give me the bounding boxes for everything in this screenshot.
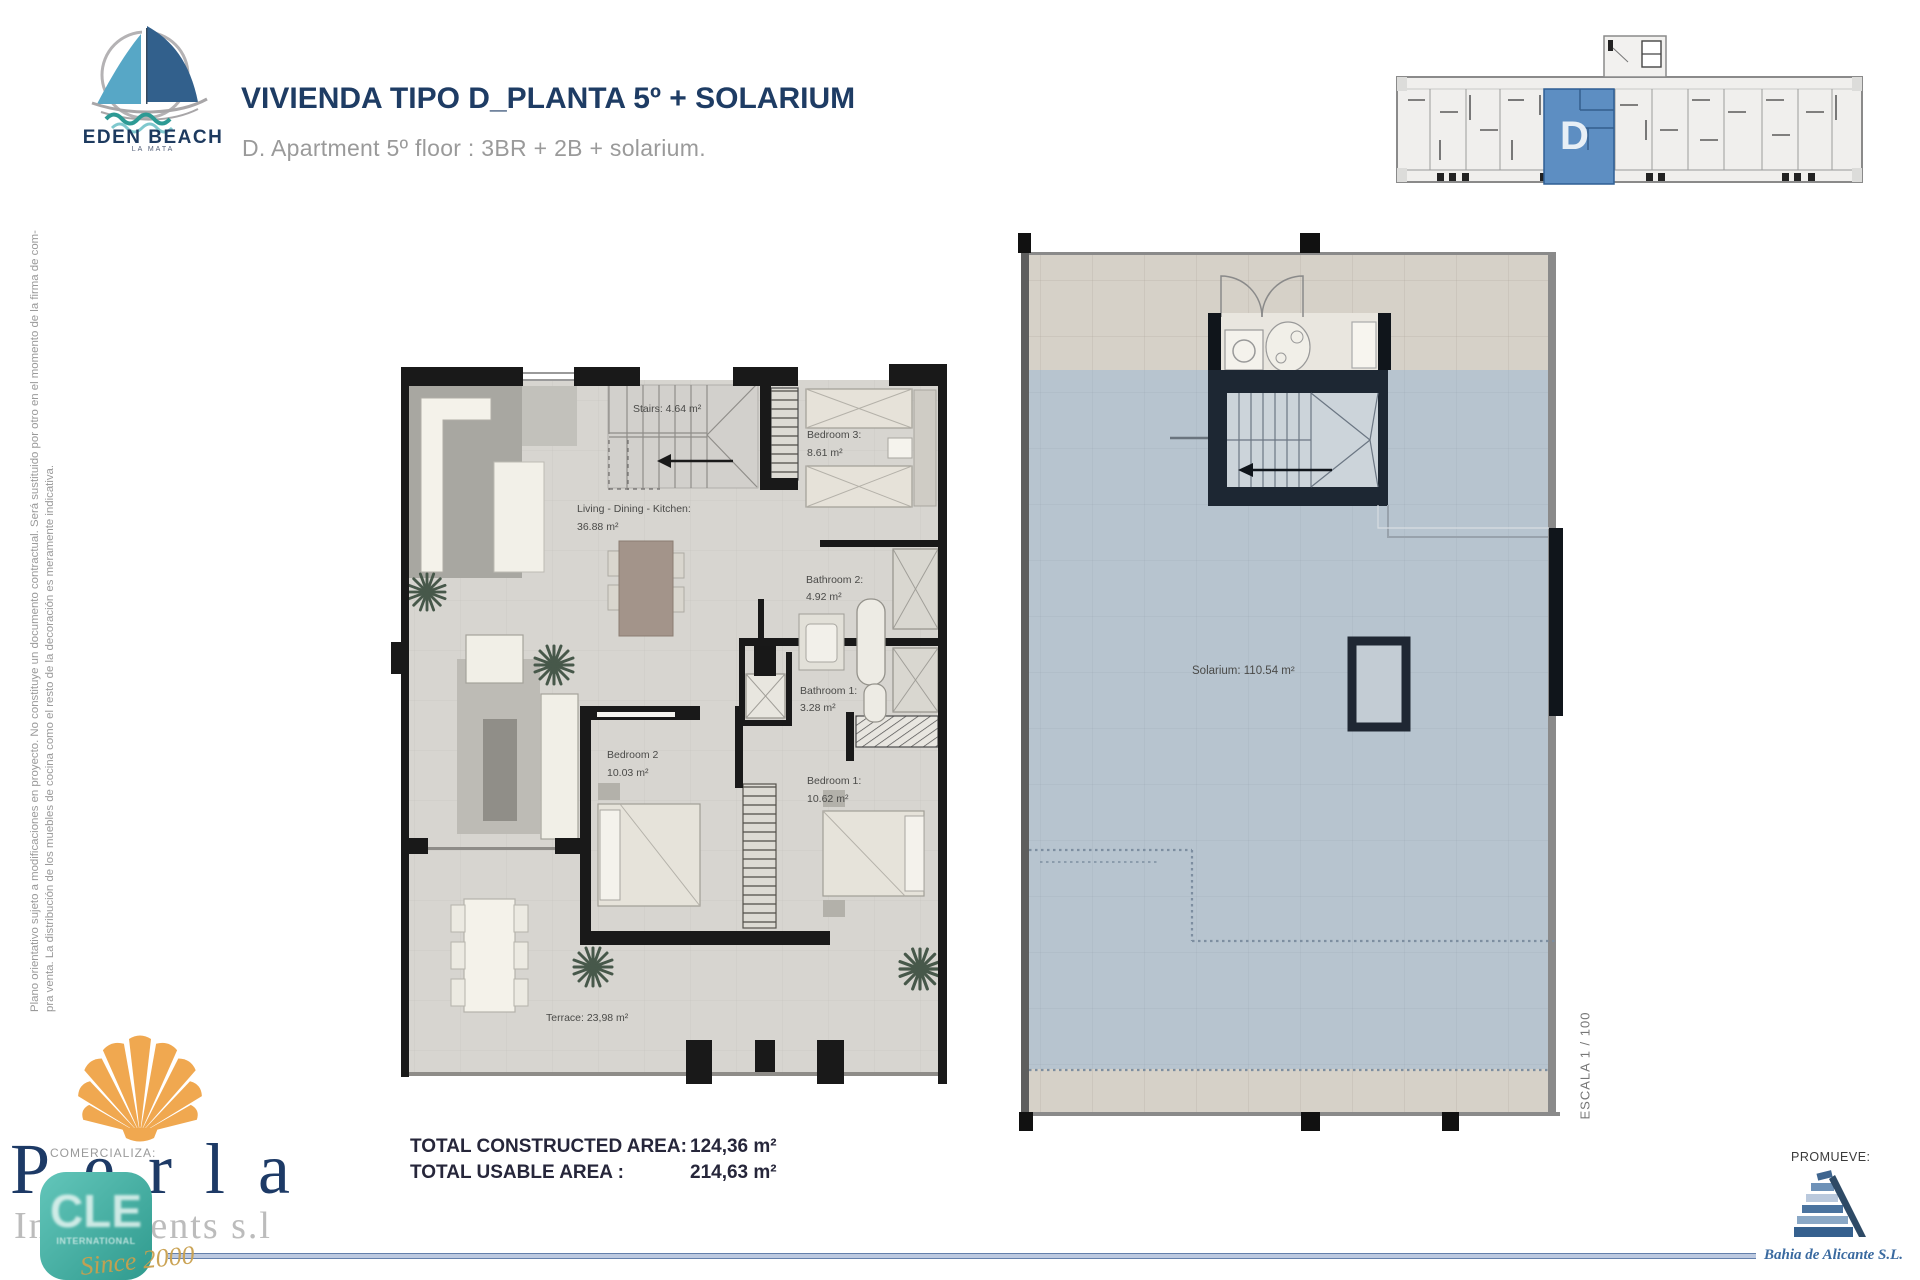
svg-text:Bathroom 1:: Bathroom 1: — [800, 685, 857, 697]
svg-text:36.88 m²: 36.88 m² — [577, 521, 619, 533]
svg-text:10.03 m²: 10.03 m² — [607, 767, 649, 779]
svg-text:8.61 m²: 8.61 m² — [807, 447, 843, 459]
svg-text:Bedroom 1:: Bedroom 1: — [807, 775, 861, 787]
svg-text:Living - Dining - Kitchen:: Living - Dining - Kitchen: — [577, 503, 691, 515]
svg-text:Bedroom 3:: Bedroom 3: — [807, 429, 861, 441]
svg-text:10.62 m²: 10.62 m² — [807, 793, 849, 805]
svg-text:Solarium: 110.54 m²: Solarium: 110.54 m² — [1192, 665, 1295, 677]
svg-text:Terrace: 23,98 m²: Terrace: 23,98 m² — [546, 1012, 629, 1024]
svg-text:Bathroom 2:: Bathroom 2: — [806, 574, 863, 586]
svg-text:Stairs: 4.64 m²: Stairs: 4.64 m² — [633, 403, 702, 415]
svg-text:Bedroom 2: Bedroom 2 — [607, 749, 659, 761]
svg-text:D: D — [1560, 114, 1589, 158]
svg-text:3.28 m²: 3.28 m² — [800, 702, 836, 714]
svg-text:4.92 m²: 4.92 m² — [806, 591, 842, 603]
